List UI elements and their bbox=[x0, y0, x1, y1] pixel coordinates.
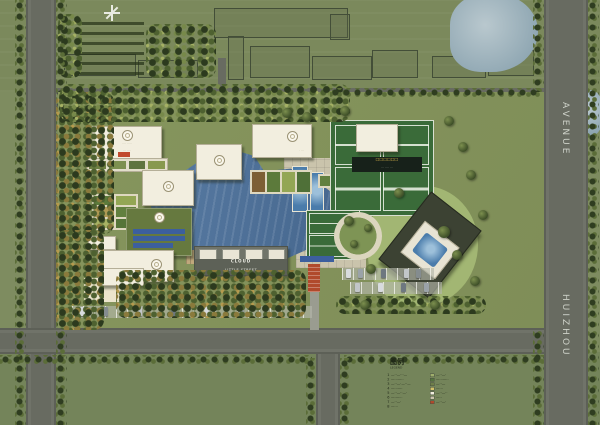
context-building-outline bbox=[214, 8, 348, 38]
building-e-green-roof: ····· ···· ···· ····· ······· bbox=[126, 208, 192, 256]
court-label-line1: □□□□□□ bbox=[352, 157, 422, 162]
roof-emblem-icon bbox=[287, 131, 298, 142]
label-strip: ···· ····· bbox=[133, 236, 185, 241]
plaza-label-strip: ····· ··· bbox=[300, 256, 334, 262]
context-building-outline bbox=[372, 50, 418, 78]
label-strip: ······· bbox=[133, 243, 173, 248]
car bbox=[346, 269, 351, 278]
roof-emblem-icon bbox=[151, 259, 162, 270]
car bbox=[404, 269, 409, 278]
site-master-plan: AVENUE HUIZHOU □□□□□□ ··· ···· ··· bbox=[0, 0, 600, 425]
building-b bbox=[196, 144, 242, 180]
context-building-outline bbox=[250, 46, 310, 78]
north-arrow-icon bbox=[104, 5, 120, 21]
legend-right-col: —··—·—···—··—··——···—··—··—··—··—· bbox=[430, 373, 534, 405]
avenue-label-top: AVENUE bbox=[560, 102, 570, 178]
red-flowerbed bbox=[118, 152, 130, 157]
tree bbox=[470, 276, 480, 286]
tree bbox=[458, 142, 468, 152]
legend-item: 8—··· bbox=[386, 405, 490, 410]
car bbox=[424, 283, 429, 292]
tree-row bbox=[330, 88, 540, 98]
roof-emblem-icon bbox=[122, 130, 133, 141]
tree bbox=[350, 240, 358, 248]
avenue-label-bottom: HUIZHOU bbox=[560, 294, 570, 374]
tree bbox=[478, 210, 488, 220]
context-building-outline bbox=[330, 14, 350, 40]
roof-emblem-icon bbox=[154, 212, 165, 223]
building-c: · ··· bbox=[252, 124, 312, 158]
red-feature-path bbox=[308, 264, 320, 292]
tree bbox=[360, 300, 370, 310]
building-c-note: · ··· bbox=[299, 149, 304, 153]
tree bbox=[364, 224, 372, 232]
tree bbox=[340, 106, 350, 116]
context-building-outline bbox=[312, 56, 372, 80]
car bbox=[355, 283, 360, 292]
tree bbox=[466, 170, 476, 180]
tree bbox=[302, 112, 312, 122]
tree bbox=[344, 216, 354, 226]
tree bbox=[282, 108, 292, 118]
tree-canopy-west bbox=[56, 230, 104, 330]
roof-emblem-icon bbox=[163, 181, 174, 192]
street-trees bbox=[0, 355, 312, 365]
road-south bbox=[0, 328, 546, 354]
road-south-branch bbox=[316, 354, 340, 425]
court-label-line2: ··· ···· ··· bbox=[352, 166, 422, 170]
garden-plots bbox=[250, 170, 312, 194]
label-strip: ····· ···· bbox=[133, 229, 185, 234]
car bbox=[401, 283, 406, 292]
tree bbox=[394, 188, 404, 198]
legend-item: —··—· bbox=[430, 400, 534, 405]
street-trees bbox=[306, 358, 316, 425]
car bbox=[416, 269, 421, 278]
court-label: □□□□□□ ··· ···· ··· bbox=[352, 157, 422, 172]
hedge-rows bbox=[80, 22, 144, 76]
tree bbox=[452, 250, 462, 260]
tree bbox=[366, 264, 376, 274]
cloud-street-line1: CLOUD bbox=[195, 259, 287, 264]
tree-grove bbox=[146, 24, 216, 78]
legend: 图例 LEGEND 1—··—···—2—···—··3—··—·—··—4—·… bbox=[382, 356, 486, 422]
building-d bbox=[142, 170, 194, 206]
legend-subtitle: LEGEND bbox=[390, 366, 402, 370]
tree bbox=[438, 226, 450, 238]
street-trees bbox=[588, 0, 599, 425]
car bbox=[378, 283, 383, 292]
context-building-outline bbox=[228, 36, 244, 80]
car bbox=[358, 269, 363, 278]
car bbox=[381, 269, 386, 278]
tree-canopy bbox=[336, 296, 486, 314]
street-trees bbox=[340, 358, 350, 425]
tree bbox=[444, 116, 454, 126]
tree-canopy-south bbox=[116, 270, 306, 318]
roof-emblem-icon bbox=[214, 155, 225, 166]
circular-plaza bbox=[334, 212, 382, 260]
tree bbox=[430, 300, 440, 310]
court-pavilion bbox=[356, 124, 398, 152]
